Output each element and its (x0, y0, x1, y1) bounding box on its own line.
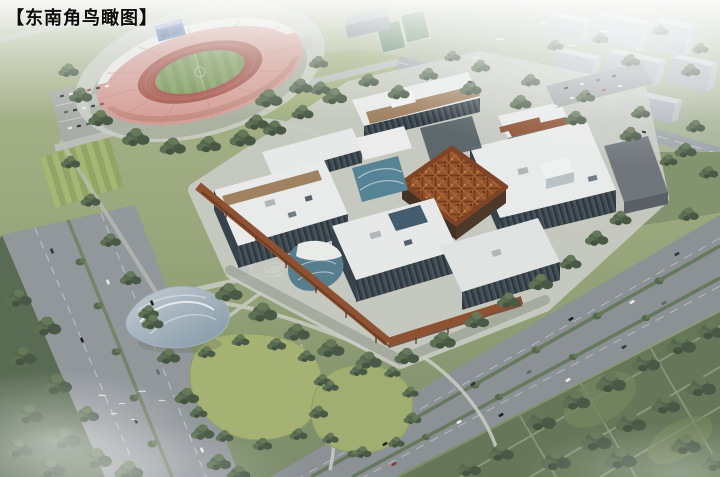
haze (0, 0, 720, 477)
screenshot-root: 【东南角鸟瞰图】 (0, 0, 720, 477)
caption: 【东南角鸟瞰图】 (6, 8, 158, 30)
aerial-rendering (0, 0, 720, 477)
